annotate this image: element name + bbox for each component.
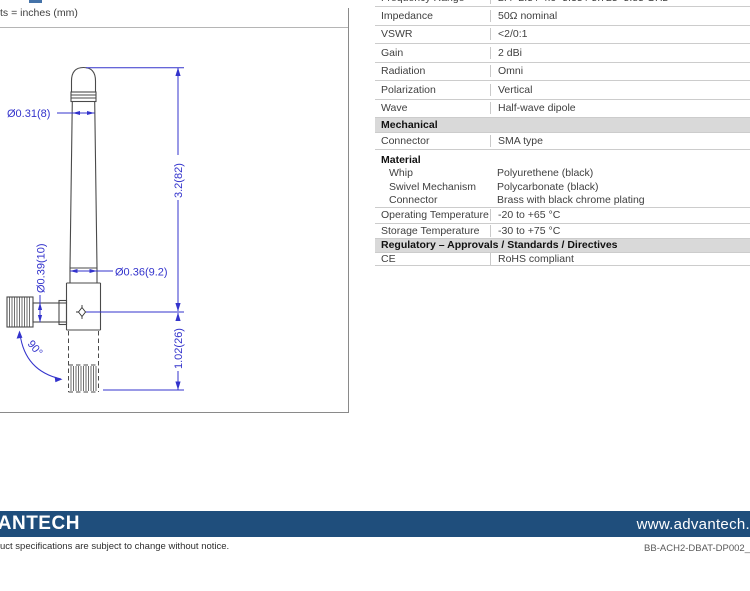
- material-item-value: Brass with black chrome plating: [497, 194, 750, 207]
- table-row: Gain 2 dBi: [375, 44, 750, 63]
- material-title: Material: [381, 154, 490, 167]
- spec-value: Vertical: [490, 84, 750, 96]
- spec-table: Frequency Range 2.4–2.5 / 4.9–5.35 / 5.7…: [375, 0, 750, 266]
- units-note: ts = inches (mm): [0, 7, 78, 19]
- table-row: Wave Half-wave dipole: [375, 100, 750, 119]
- material-item-label: Connector: [381, 194, 490, 207]
- table-row: Polarization Vertical: [375, 81, 750, 100]
- dim-label-swivel-diameter: Ø0.39(10): [36, 243, 48, 293]
- advantech-logo: VANTECH: [0, 513, 80, 535]
- spec-value: <2/0:1: [490, 28, 750, 40]
- spec-label: Polarization: [375, 84, 490, 96]
- spec-label: Storage Temperature: [375, 225, 490, 237]
- footer-brand-bar: VANTECH www.advantech.: [0, 511, 750, 537]
- material-labels: Material Whip Swivel Mechanism Connector: [375, 150, 490, 208]
- material-item-value: Polyurethene (black): [497, 167, 750, 180]
- spec-value: -30 to +75 °C: [490, 225, 750, 237]
- material-values: Polyurethene (black) Polycarbonate (blac…: [490, 150, 750, 208]
- dim-label-base-diameter: Ø0.36(9.2): [115, 267, 168, 279]
- website-link[interactable]: www.advantech.: [637, 516, 750, 533]
- table-row: Radiation Omni: [375, 63, 750, 82]
- antenna-outline: [7, 68, 101, 331]
- spec-value: SMA type: [490, 135, 750, 147]
- material-item-label: Swivel Mechanism: [381, 181, 490, 194]
- antenna-dimension-drawing: Ø0.31(8) Ø0.36(9.2) Ø0.39(10) 3.2(82) 1.…: [0, 27, 348, 413]
- spec-label: Connector: [375, 135, 490, 147]
- spec-label: VSWR: [375, 28, 490, 40]
- table-row: CE RoHS compliant: [375, 253, 750, 266]
- spec-value: -20 to +65 °C: [490, 209, 750, 221]
- spec-value: 2.4–2.5 / 4.9–5.35 / 5.725–5.85 GHz: [490, 0, 750, 4]
- spec-label: Frequency Range: [375, 0, 490, 4]
- dim-label-connector-length: 1.02(26): [173, 328, 185, 369]
- table-row: Operating Temperature -20 to +65 °C: [375, 208, 750, 224]
- dim-label-whip-diameter: Ø0.31(8): [7, 108, 50, 120]
- spec-value: 2 dBi: [490, 47, 750, 59]
- material-item-value: Polycarbonate (black): [497, 181, 750, 194]
- spec-label: Operating Temperature: [375, 209, 490, 221]
- spec-label: Wave: [375, 102, 490, 114]
- material-spacer: [497, 154, 750, 167]
- table-row: Storage Temperature -30 to +75 °C: [375, 224, 750, 239]
- dim-label-swivel-angle: 90°: [25, 338, 45, 358]
- spec-value: 50Ω nominal: [490, 10, 750, 22]
- table-row: Impedance 50Ω nominal: [375, 7, 750, 26]
- sma-nut-knurl: [10, 297, 30, 327]
- footer-disclaimer: uct specifications are subject to change…: [0, 541, 229, 552]
- material-group-row: Material Whip Swivel Mechanism Connector…: [375, 150, 750, 208]
- table-row: Connector SMA type: [375, 133, 750, 150]
- spec-value: Omni: [490, 65, 750, 77]
- spec-value: Half-wave dipole: [490, 102, 750, 114]
- section-header-mechanical: Mechanical: [375, 118, 750, 133]
- spec-label: CE: [375, 253, 490, 265]
- document-number: BB-ACH2-DBAT-DP002_: [644, 543, 750, 554]
- spec-label: Gain: [375, 47, 490, 59]
- spec-label: Radiation: [375, 65, 490, 77]
- datasheet-page: ts = inches (mm): [0, 0, 750, 591]
- material-item-label: Whip: [381, 167, 490, 180]
- dashed-connector-knurl: [71, 366, 96, 391]
- spec-label: Impedance: [375, 10, 490, 22]
- clipped-heading-fragment: [29, 0, 42, 3]
- table-row: Frequency Range 2.4–2.5 / 4.9–5.35 / 5.7…: [375, 0, 750, 7]
- dim-label-whip-length: 3.2(82): [173, 163, 185, 198]
- section-header-regulatory: Regulatory – Approvals / Standards / Dir…: [375, 239, 750, 254]
- spec-value: RoHS compliant: [490, 253, 750, 265]
- drawing-frame-edge: [348, 8, 349, 28]
- table-row: VSWR <2/0:1: [375, 26, 750, 45]
